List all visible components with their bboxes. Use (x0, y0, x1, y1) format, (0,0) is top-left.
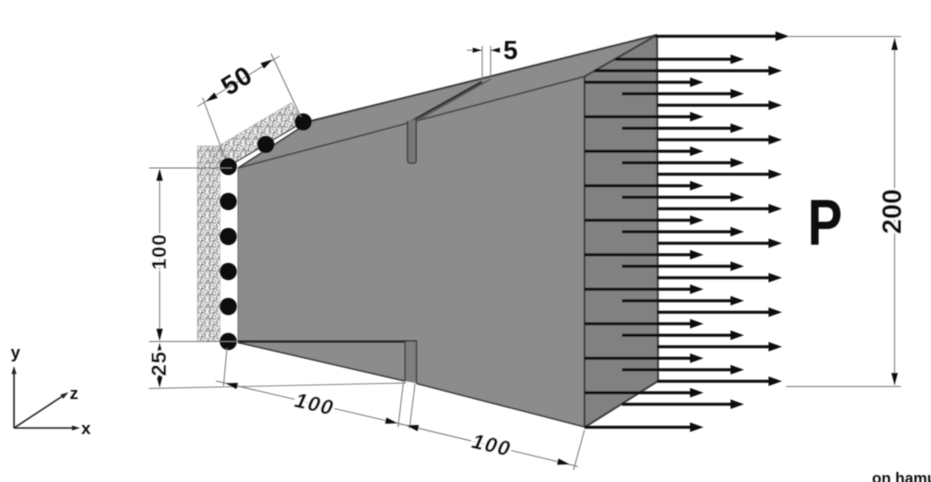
svg-text:P: P (808, 188, 843, 260)
svg-text:25: 25 (148, 351, 171, 376)
svg-text:x: x (81, 419, 91, 438)
svg-text:5: 5 (503, 35, 517, 65)
svg-text:on hamu a: on hamu a (872, 471, 931, 482)
svg-text:z: z (70, 384, 79, 403)
svg-text:y: y (11, 343, 21, 362)
svg-text:100: 100 (149, 233, 171, 269)
svg-text:200: 200 (877, 189, 907, 234)
